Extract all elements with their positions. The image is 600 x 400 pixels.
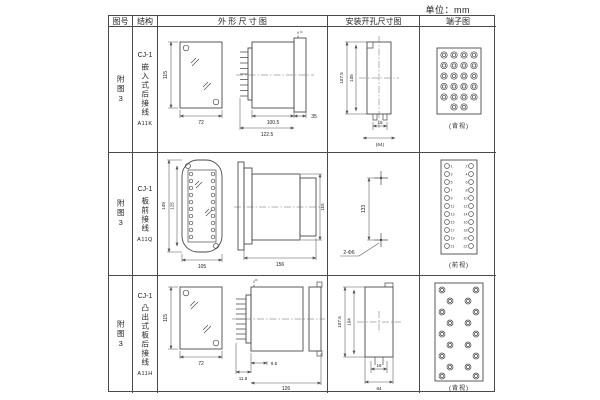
svg-text:8: 8 [466, 188, 468, 192]
cell-outline-row1: 115 72 100.5 35 122.5 [158, 27, 328, 153]
svg-text:15: 15 [451, 220, 455, 224]
front-view: 115 72 [163, 287, 222, 367]
terminal-drawing-row2: 13579111315171921 246810121416182022 (前视… [421, 154, 495, 275]
svg-text:19: 19 [451, 236, 455, 240]
install-drawing-row1: 107.5 105 16 (64) [329, 28, 419, 152]
svg-text:14: 14 [464, 212, 468, 216]
svg-text:1: 1 [451, 164, 453, 168]
dim-install-v1-row3: 107.5 [337, 316, 342, 328]
cell-install-row2: 133 2-Φ6 [328, 153, 420, 276]
structure-name-row2: 板前接线 [141, 197, 149, 233]
header-outline: 外 形 尺 寸 图 [158, 16, 328, 27]
svg-text:4: 4 [466, 172, 468, 176]
outline-drawing-row1: 115 72 100.5 35 122.5 [158, 28, 327, 152]
dim-install-v1-row2: 133 [361, 204, 367, 213]
svg-text:18: 18 [464, 228, 468, 232]
model-row1: CJ-1 [138, 52, 153, 59]
svg-text:9: 9 [451, 196, 453, 200]
dim-side-b-row1: 122.5 [261, 132, 274, 138]
dim-install-v2-row3: 104 [346, 318, 351, 326]
svg-text:17: 17 [451, 228, 455, 232]
terminal-circles-row3 [439, 287, 479, 379]
dim-front-height-row3: 115 [163, 314, 169, 322]
svg-text:12: 12 [464, 204, 468, 208]
svg-text:2: 2 [466, 164, 468, 168]
spec-table: 图号 结构 外 形 尺 寸 图 安装开孔尺寸图 端子图 附图3 CJ-1 嵌入式… [108, 15, 495, 392]
dim-install-v2-row1: 105 [349, 73, 354, 81]
dim-side-a-row3: 9.5 [271, 361, 278, 366]
outline-drawing-row2: 149 125 105 156 115 [158, 154, 327, 275]
cell-outline-row3: 115 72 9.5 11.5 126 [158, 276, 328, 393]
dim-install-h1-row3: 16 [376, 363, 382, 368]
header-install: 安装开孔尺寸图 [328, 16, 420, 27]
cell-terminal-row1: (背视) [420, 27, 496, 153]
code-row2: A11Q [137, 237, 153, 243]
dim-side-c-row3: 126 [282, 386, 291, 392]
install-drawing-row3: 107.5 104 16 64 [329, 277, 419, 392]
outline-drawing-row3: 115 72 9.5 11.5 126 [158, 277, 327, 392]
svg-text:22: 22 [464, 244, 468, 248]
cell-install-row3: 107.5 104 16 64 [328, 276, 420, 393]
svg-text:10: 10 [464, 196, 468, 200]
terminal-circles-left-row2: 13579111315171921 [445, 163, 455, 248]
header-structure: 结构 [133, 16, 158, 27]
install-drawing-row2: 133 2-Φ6 [329, 154, 419, 275]
cell-install-row1: 107.5 105 16 (64) [328, 27, 420, 153]
cell-fig-no-row2: 附图3 [109, 153, 133, 276]
dim-front-width-row1: 72 [198, 120, 204, 126]
svg-text:6: 6 [466, 180, 468, 184]
fig-no-row1: 附图3 [117, 75, 125, 105]
dim-install-h2-row1: (64) [375, 142, 384, 147]
dim-front-h-row2: 149 [161, 201, 166, 209]
terminal-view-label-row1: (背视) [449, 122, 469, 130]
terminal-circles-right-row2: 246810121416182022 [464, 163, 474, 248]
cell-fig-no-row3: 附图3 [109, 276, 133, 393]
front-view: 149 125 105 [161, 160, 222, 270]
cell-terminal-row3: (背视) [420, 276, 496, 393]
svg-text:13: 13 [451, 212, 455, 216]
dim-install-h2-row3: 64 [376, 386, 382, 391]
side-view: 156 115 [234, 162, 325, 268]
cell-structure-row2: CJ-1 板前接线 A11Q [133, 153, 158, 276]
install-holes-label-row2: 2-Φ6 [343, 250, 354, 256]
code-row1: A11K [137, 121, 152, 127]
terminal-drawing-row3: (背视) [421, 277, 495, 392]
mounting-holes [374, 171, 388, 247]
dim-install-v1-row1: 107.5 [339, 71, 344, 83]
cell-structure-row3: CJ-1 凸出式板后接线 A11H [133, 276, 158, 393]
side-view: 100.5 35 122.5 [236, 32, 317, 138]
cell-structure-row1: CJ-1 嵌入式后接线 A11K [133, 27, 158, 153]
dim-side-b-row3: 11.5 [239, 376, 248, 381]
terminal-view-label-row2: (前视) [449, 261, 469, 269]
svg-text:3: 3 [451, 172, 453, 176]
structure-name-row3: 凸出式板后接线 [141, 304, 149, 367]
svg-text:21: 21 [451, 244, 455, 248]
dim-front-h2-row2: 125 [170, 201, 175, 209]
svg-text:16: 16 [464, 220, 468, 224]
svg-text:20: 20 [464, 236, 468, 240]
terminal-view-label-row3: (背视) [449, 384, 469, 392]
dim-front-w-row2: 105 [198, 264, 207, 270]
header-fig-no: 图号 [109, 16, 133, 27]
terminal-circles-row1 [441, 51, 477, 109]
model-row2: CJ-1 [138, 186, 153, 193]
dim-side-a-row1: 100.5 [267, 120, 280, 126]
dim-side-b-row2: 115 [320, 202, 325, 210]
model-row3: CJ-1 [138, 293, 153, 300]
fig-no-row3: 附图3 [117, 320, 125, 350]
side-view: 9.5 11.5 126 [232, 280, 325, 392]
svg-text:7: 7 [451, 188, 453, 192]
cell-outline-row2: 149 125 105 156 115 [158, 153, 328, 276]
cell-fig-no-row1: 附图3 [109, 27, 133, 153]
front-view: 115 72 [163, 42, 222, 126]
terminal-drawing-row1: (背视) [421, 28, 495, 152]
dim-front-height-row1: 115 [163, 70, 169, 78]
fig-no-row2: 附图3 [117, 199, 125, 229]
header-terminal: 端子图 [420, 16, 496, 27]
code-row3: A11H [137, 371, 152, 377]
dim-install-h1-row1: 16 [377, 120, 383, 125]
dim-front-width-row3: 72 [198, 361, 204, 367]
cell-terminal-row2: 13579111315171921 246810121416182022 (前视… [420, 153, 496, 276]
dim-side-c-row1: 35 [311, 114, 317, 120]
svg-text:5: 5 [451, 180, 453, 184]
svg-text:11: 11 [451, 204, 455, 208]
dim-side-a-row2: 156 [276, 262, 285, 268]
structure-name-row1: 嵌入式后接线 [141, 63, 149, 117]
